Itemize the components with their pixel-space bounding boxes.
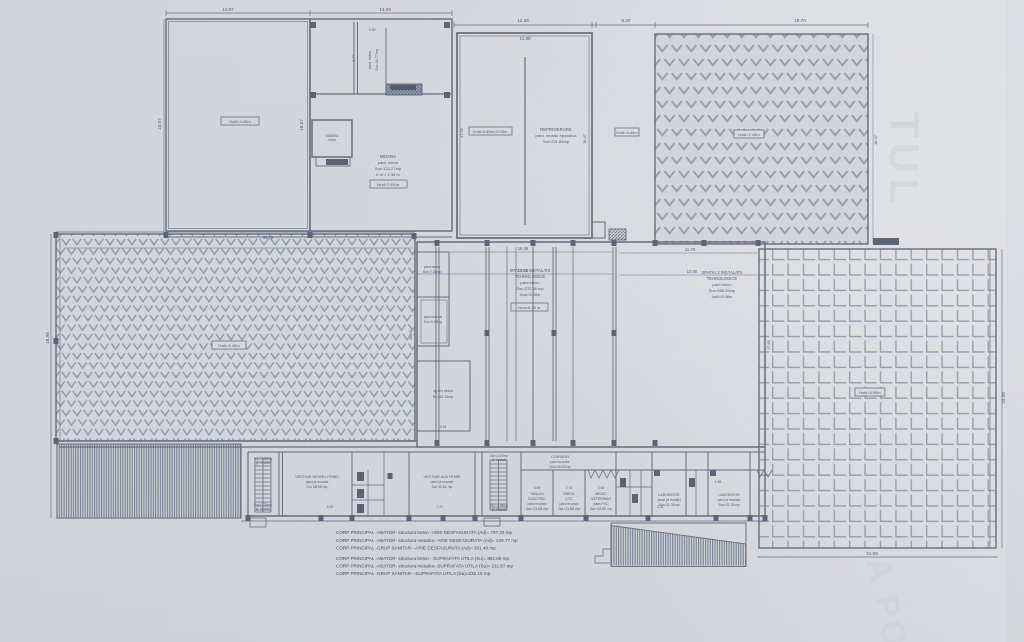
svg-text:Sur=12.82 mp: Sur=12.82 mp [590, 507, 612, 511]
svg-text:hutil=5.06m: hutil=5.06m [712, 294, 733, 299]
svg-text:mica: mica [328, 138, 335, 142]
svg-text:Sur 58.95 mp: Sur 58.95 mp [306, 485, 327, 489]
svg-text:Hutil=6.00m: Hutil=6.00m [859, 390, 881, 395]
svg-text:CTC: CTC [565, 497, 573, 501]
svg-text:Sur=121.27mp: Sur=121.27mp [375, 166, 402, 171]
svg-text:35.20: 35.20 [263, 235, 274, 240]
svg-text:2.94: 2.94 [598, 486, 605, 490]
svg-text:24.98: 24.98 [1001, 392, 1006, 404]
svg-text:Hutil=4.45m=5.00m: Hutil=4.45m=5.00m [473, 129, 509, 134]
svg-text:pard beton: pard beton [424, 265, 440, 269]
svg-text:pard mozaic: pard mozaic [424, 315, 443, 319]
svg-text:SPATIU 1 INSTALATII: SPATIU 1 INSTALATII [510, 268, 551, 273]
svg-text:Sur=272.56 mp: Sur=272.56 mp [516, 286, 544, 291]
svg-text:7.27: 7.27 [437, 505, 444, 509]
svg-text:Sur=13.58 mp: Sur=13.58 mp [526, 507, 548, 511]
svg-text:CORP PRINCIPAL -GRUP SANITAR-: CORP PRINCIPAL -GRUP SANITAR- -SUPRAFATA… [336, 571, 491, 576]
svg-text:Sur=211.83mp: Sur=211.83mp [543, 139, 570, 144]
svg-text:Hvol=7.45 m: Hvol=7.45 m [377, 182, 400, 187]
svg-text:17.85: 17.85 [766, 339, 771, 350]
svg-text:18.98: 18.98 [45, 332, 50, 344]
svg-text:pard mozaic: pard mozaic [527, 502, 546, 506]
svg-text:para PVC: para PVC [593, 502, 609, 506]
svg-text:13.59: 13.59 [379, 7, 391, 12]
svg-text:pl. mozaic: pl. mozaic [256, 461, 271, 465]
svg-text:MEDIC: MEDIC [595, 492, 607, 496]
svg-text:Sur 43.52 mp: Sur 43.52 mp [431, 485, 452, 489]
svg-text:18.05: 18.05 [408, 329, 413, 340]
svg-text:3.95: 3.95 [534, 486, 541, 490]
svg-text:pard pl mozaic: pard pl mozaic [306, 480, 329, 484]
svg-text:Sur=11.88 mp: Sur=11.88 mp [558, 507, 580, 511]
svg-text:Hutil=4.40m: Hutil=4.40m [229, 119, 251, 124]
svg-text:TEHNOLOGICE: TEHNOLOGICE [515, 274, 546, 279]
svg-text:BIROU: BIROU [563, 492, 575, 496]
svg-text:1.98: 1.98 [715, 480, 722, 484]
svg-text:pl. mozaic: pl. mozaic [256, 507, 271, 511]
svg-text:Sur=7.35mp: Sur=7.35mp [423, 270, 442, 274]
svg-text:pl. mozaic: pl. mozaic [492, 458, 507, 462]
svg-text:Sur=21.31mp: Sur=21.31mp [718, 503, 739, 507]
svg-text:Sur=18.67mp: Sur=18.67mp [549, 465, 570, 469]
svg-text:11.88: 11.88 [519, 36, 531, 41]
svg-text:h ut = 2.98 m: h ut = 2.98 m [376, 172, 400, 177]
svg-text:pard beton: pard beton [520, 280, 539, 285]
svg-text:18.47: 18.47 [582, 133, 587, 144]
svg-text:SL=20.15mp: SL=20.15mp [433, 395, 453, 399]
svg-text:CORP PRINCIPAL -ABATOR- struct: CORP PRINCIPAL -ABATOR- structura beton … [336, 556, 509, 561]
svg-text:VESTIAR ALB FEMEI: VESTIAR ALB FEMEI [424, 475, 461, 479]
svg-text:18.70: 18.70 [794, 18, 806, 23]
svg-text:pard mozaic: pard mozaic [559, 502, 578, 506]
svg-text:CORP PRINCIPAL -ABATOR- struct: CORP PRINCIPAL -ABATOR- structura beton … [336, 530, 513, 535]
svg-text:CORP PRINCIPAL -ABATOR- struct: CORP PRINCIPAL -ABATOR- structura metali… [336, 564, 513, 569]
svg-text:4.78: 4.78 [657, 505, 664, 509]
svg-text:sp.teh beton: sp.teh beton [433, 389, 453, 393]
svg-text:CORP PRINCIPAL -GRUP SANITAR-: CORP PRINCIPAL -GRUP SANITAR- -ARIE DESF… [336, 546, 496, 551]
svg-text:5.20: 5.20 [622, 18, 631, 23]
svg-text:18.47: 18.47 [873, 134, 878, 145]
svg-text:TABLOU: TABLOU [530, 492, 544, 496]
svg-text:pard beton: pard beton [712, 282, 731, 287]
svg-text:18.46: 18.46 [518, 246, 529, 251]
svg-text:Hutil=7.45m: Hutil=7.45m [738, 132, 760, 137]
svg-text:MOARA: MOARA [380, 154, 396, 159]
svg-text:TUL: TUL [881, 112, 928, 209]
svg-text:pard mozaic: pard mozaic [550, 460, 569, 464]
svg-text:pl. mozaic: pl. mozaic [492, 508, 507, 512]
svg-text:5.77: 5.77 [352, 55, 356, 62]
svg-text:hvol=3.40m: hvol=3.40m [520, 292, 541, 297]
svg-text:pard. mozaic epoxidica: pard. mozaic epoxidica [536, 133, 578, 138]
svg-text:18.57: 18.57 [157, 118, 162, 130]
svg-text:4.19: 4.19 [440, 425, 447, 429]
svg-text:17.91: 17.91 [459, 127, 464, 138]
svg-text:Sur=16.77mp: Sur=16.77mp [375, 49, 379, 71]
svg-text:11.78: 11.78 [685, 247, 696, 252]
svg-text:13.97: 13.97 [222, 7, 234, 12]
svg-text:2.76: 2.76 [566, 486, 573, 490]
svg-text:CORIDOR: CORIDOR [551, 455, 569, 459]
svg-text:Sur=5.28mp: Sur=5.28mp [424, 320, 443, 324]
svg-text:LABORATOR: LABORATOR [718, 493, 740, 497]
svg-text:Hutil=4.45m: Hutil=4.45m [616, 130, 638, 135]
svg-text:Hutil=5.45m: Hutil=5.45m [218, 343, 240, 348]
svg-text:pard pl mozaic: pard pl mozaic [431, 480, 454, 484]
svg-text:3.90: 3.90 [369, 28, 376, 32]
svg-text:REFRIGERARE: REFRIGERARE [540, 127, 572, 132]
svg-text:LABORATOR: LABORATOR [658, 493, 680, 497]
svg-text:Hvol=6.45 m: Hvol=6.45 m [518, 305, 541, 310]
svg-text:SPATIU 2 INSTALATII: SPATIU 2 INSTALATII [702, 270, 743, 275]
svg-text:21.06: 21.06 [866, 551, 878, 556]
svg-text:Sur=556.25mp: Sur=556.25mp [709, 288, 736, 293]
svg-text:pard. beton: pard. beton [368, 51, 372, 69]
svg-text:4.90: 4.90 [327, 505, 334, 509]
svg-text:12.48: 12.48 [517, 18, 529, 23]
svg-text:(anal pt moale): (anal pt moale) [657, 498, 680, 502]
svg-text:pard pl mozaic: pard pl mozaic [718, 498, 741, 502]
svg-text:VETERINAR: VETERINAR [591, 497, 612, 501]
svg-text:ELECTRIC: ELECTRIC [528, 497, 546, 501]
svg-text:CORP PRINCIPAL -ABATOR- struct: CORP PRINCIPAL -ABATOR- structura metali… [336, 538, 518, 543]
svg-text:12.00: 12.00 [687, 269, 698, 274]
svg-text:VESTIAR NEGRU FEMEI: VESTIAR NEGRU FEMEI [295, 475, 339, 479]
svg-text:18.57: 18.57 [299, 119, 304, 131]
svg-text:pard. beton: pard. beton [378, 160, 398, 165]
svg-text:TEHNOLOGICE: TEHNOLOGICE [707, 276, 738, 281]
